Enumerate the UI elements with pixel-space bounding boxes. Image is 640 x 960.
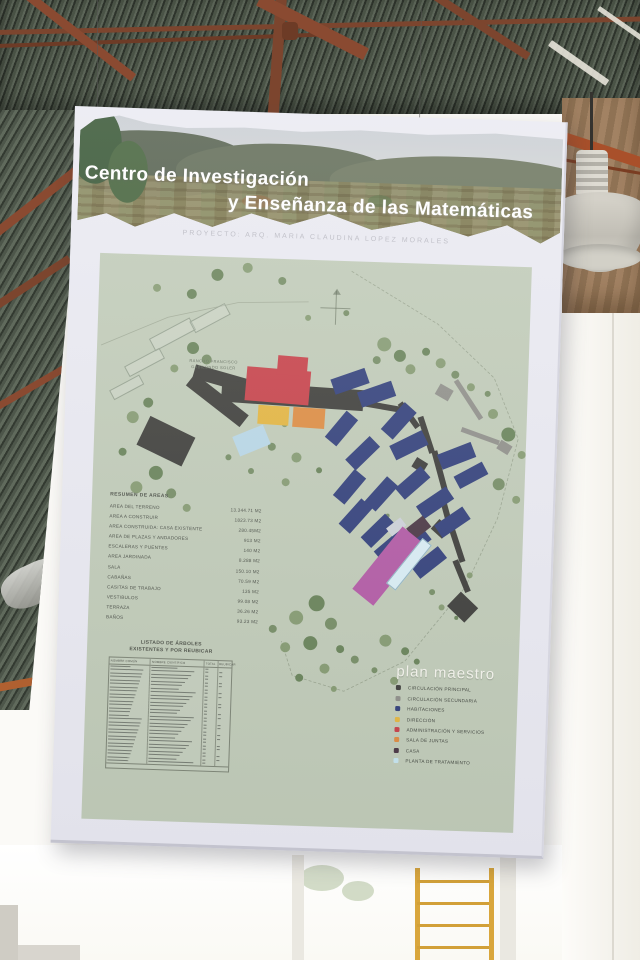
legend-label: CIRCULACIÓN SECUNDARIA	[407, 696, 477, 703]
window-light-area	[0, 845, 640, 960]
window-mullion	[500, 850, 516, 960]
area-label: SALA	[108, 562, 121, 573]
foliage-through-window	[342, 881, 374, 901]
lamp-cord	[590, 92, 593, 154]
legend-label: CASA	[406, 748, 420, 753]
trees-table-box: NOMBRE COMÚN NOMBRE CIENTÍFICO TOTAL REU…	[105, 656, 233, 772]
roof-light-gap	[548, 40, 609, 86]
site-plan-map: RANCHO FRANCISCO GABILONDO SOLER RESUMEN…	[81, 253, 532, 833]
legend-label: ADMINISTRACIÓN Y SERVICIOS	[406, 727, 484, 735]
right-wall	[562, 313, 640, 960]
ladder	[489, 868, 494, 960]
legend-label: HABITACIONES	[407, 707, 445, 713]
area-value: 93.23 M2	[237, 617, 258, 628]
legend-color-swatch	[395, 717, 400, 722]
window-mullion	[292, 855, 304, 960]
left-truss-beam-3	[0, 365, 66, 416]
legend-color-swatch	[394, 737, 399, 742]
wall-shadow	[0, 905, 18, 960]
ladder-rung	[417, 902, 489, 905]
area-value: 99.08 M2	[237, 597, 258, 608]
legend-color-swatch	[394, 727, 399, 732]
roof-light-gap-2	[597, 6, 640, 45]
north-arrow	[320, 290, 351, 325]
legend-items: CIRCULACIÓN PRINCIPALCIRCULACIÓN SECUNDA…	[393, 685, 514, 767]
building-dir	[257, 405, 289, 426]
wall-edge-line	[612, 313, 614, 960]
ladder-rung	[417, 924, 489, 927]
lamp-ribbed-top	[576, 150, 608, 198]
left-truss-beam-2	[0, 255, 72, 322]
building-adm	[277, 355, 309, 376]
legend-item: ADMINISTRACIÓN Y SERVICIOS	[394, 727, 512, 736]
legend-item: CIRCULACIÓN SECUNDARIA	[395, 696, 513, 705]
area-value: 8.288 M2	[239, 556, 260, 567]
area-value: 913 M2	[244, 536, 261, 547]
legend-item: DIRECCIÓN	[395, 717, 513, 726]
left-truss-beam	[0, 166, 80, 247]
trees-list-table: LISTADO DE ÁRBOLES EXISTENTES Y POR REUB…	[105, 638, 233, 772]
legend-label: SALA DE JUNTAS	[406, 738, 448, 744]
legend-color-swatch	[394, 748, 399, 753]
area-value: 36.26 M2	[237, 607, 258, 618]
master-plan-poster: Centro de Investigación y Enseñanza de l…	[51, 106, 568, 859]
legend-item: CIRCULACIÓN PRINCIPAL	[396, 685, 514, 694]
area-value: 70.59 M2	[238, 576, 259, 587]
plan-maestro-legend: plan maestro CIRCULACIÓN PRINCIPALCIRCUL…	[393, 663, 514, 767]
legend-item: CASA	[394, 748, 512, 757]
hanging-wire	[97, 0, 98, 108]
legend-item: HABITACIONES	[395, 706, 513, 715]
col-reubicar: REUBICAR	[218, 661, 232, 667]
roof-gusset	[282, 22, 298, 40]
legend-color-swatch	[395, 696, 400, 701]
lamp-opening	[558, 244, 640, 270]
area-value: 135 M2	[242, 587, 259, 598]
area-label: BAÑOS	[106, 612, 124, 623]
col-total: TOTAL	[205, 660, 219, 666]
legend-color-swatch	[393, 758, 398, 763]
ladder-rung	[417, 880, 489, 883]
legend-color-swatch	[396, 685, 401, 690]
photo-of-poster-scene: Centro de Investigación y Enseñanza de l…	[0, 0, 640, 960]
area-value: 140 M2	[243, 546, 260, 557]
legend-label: DIRECCIÓN	[407, 717, 436, 723]
building-jun	[292, 407, 325, 429]
north-arrow-tip	[333, 289, 341, 295]
area-value: 280.45M2	[238, 526, 261, 537]
trees-table-title: LISTADO DE ÁRBOLES EXISTENTES Y POR REUB…	[109, 638, 233, 657]
roof-brace-right	[426, 0, 531, 60]
legend-title: plan maestro	[396, 663, 514, 684]
ladder-rung	[417, 946, 489, 949]
areas-rows: AREA DEL TERRENO13.344.71 M2AREA A CONST…	[106, 501, 262, 627]
legend-item: SALA DE JUNTAS	[394, 737, 512, 746]
legend-color-swatch	[395, 706, 400, 711]
legend-label: CIRCULACIÓN PRINCIPAL	[408, 686, 471, 693]
foliage-through-window	[300, 865, 344, 891]
areas-summary-table: RESUMEN DE AREAS AREA DEL TERRENO13.344.…	[106, 491, 262, 627]
trees-table-rows	[106, 664, 231, 766]
corrugated-roof	[0, 0, 640, 114]
